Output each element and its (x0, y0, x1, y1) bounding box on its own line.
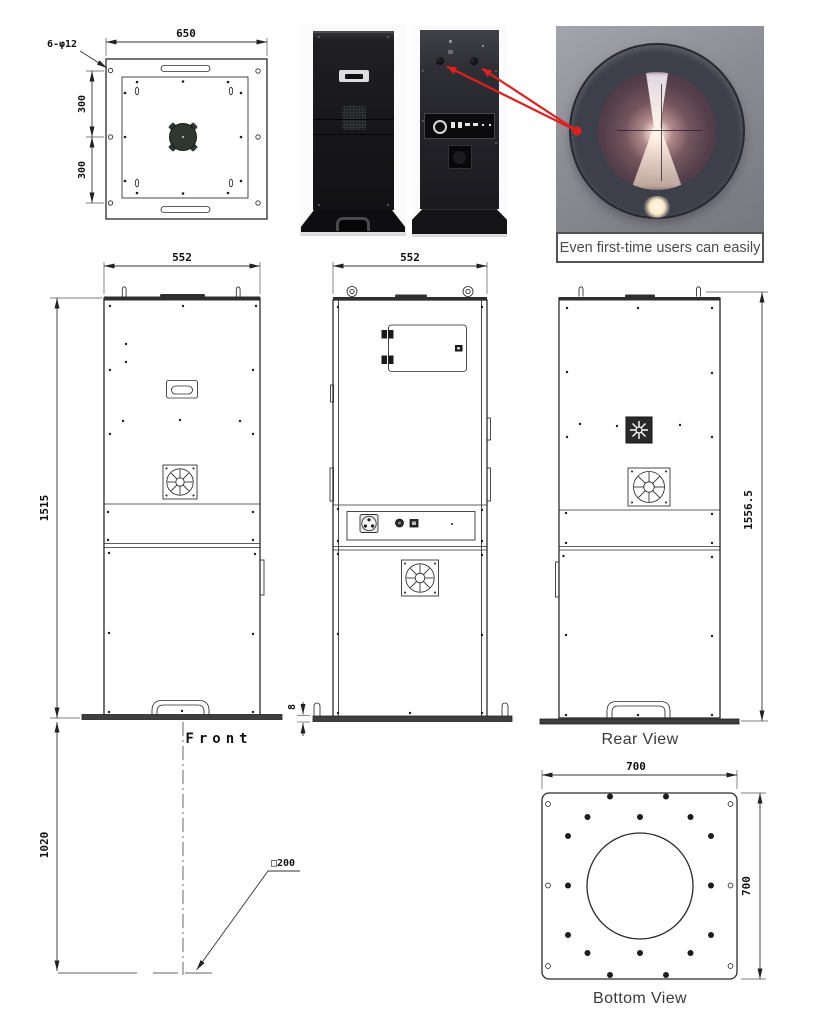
bolt-holes (565, 794, 714, 979)
front-view-label: Front (185, 731, 252, 747)
screw-dots (562, 307, 713, 716)
ceiling-fan (168, 122, 198, 152)
port (473, 123, 478, 126)
screw (495, 142, 497, 144)
light-flare (626, 72, 688, 190)
screw (318, 36, 320, 38)
focus-lens-photo (556, 26, 764, 232)
kiosk-body (313, 31, 394, 210)
large-fan-grille (628, 468, 670, 506)
spec-sheet-page: Even first-time users can easily 650 6-φ… (0, 0, 834, 1024)
lens-glass (598, 72, 716, 190)
access-door (382, 325, 467, 372)
key-slots (135, 87, 232, 187)
power-connector (433, 120, 447, 134)
kiosk-base-flange (412, 208, 507, 234)
bottom-view-drawing: 700 700 Bottom View (542, 760, 766, 1007)
top-width-dim: 650 (176, 27, 196, 40)
fan-hub (453, 151, 466, 164)
focus-knob-left (436, 57, 444, 65)
screw-dots (337, 306, 483, 714)
bottom-width-dim: 700 (626, 760, 646, 773)
open-front-drawing: 552 (287, 251, 512, 736)
bottom-glow (642, 196, 672, 218)
base-thickness-dim: 8 (287, 704, 298, 710)
screw (495, 70, 497, 72)
switch (458, 122, 462, 128)
kiosk-rear-body (420, 30, 499, 209)
base-handle-cutout (336, 217, 370, 231)
led (489, 124, 491, 126)
rear-elevation-drawing: 1556.5 Rear View (540, 287, 768, 748)
pilot-holes (546, 802, 733, 969)
screw (422, 70, 424, 72)
eyebolt-rings (347, 287, 473, 297)
panel-seam (313, 119, 394, 120)
led (482, 124, 484, 126)
open-width-dim: 552 (400, 251, 420, 264)
top-upper-dim: 300 (77, 95, 88, 113)
handle-plate (339, 70, 369, 82)
switch (451, 122, 455, 128)
screw (422, 120, 424, 122)
handle-slot (345, 74, 363, 79)
screw (387, 204, 389, 206)
mounting-holes (108, 68, 260, 205)
bottom-view-label: Bottom View (593, 990, 687, 1007)
small-fan-grille (626, 417, 652, 443)
screw-dots (124, 80, 243, 195)
front-width-dim: 552 (172, 251, 192, 264)
connector-panel-drawing (347, 512, 475, 541)
connector-panel (424, 113, 495, 139)
top-view-drawing: 650 6-φ12 300 300 (47, 27, 267, 219)
crosshair-horizontal (617, 130, 702, 131)
front-height-dim: 1515 (38, 495, 51, 522)
square-note: □200 (271, 858, 295, 869)
bottom-side-dim: 700 (740, 876, 753, 896)
holes-note: 6-φ12 (47, 39, 77, 50)
screw (387, 36, 389, 38)
rear-view-label: Rear View (601, 731, 678, 748)
vent-mark (482, 45, 484, 47)
front-kiosk-photo (300, 24, 406, 236)
floor-dimension-diagram: 1020 □200 (38, 722, 300, 975)
top-lower-dim: 300 (77, 161, 88, 179)
rear-fan (448, 145, 472, 169)
vent-mark (448, 50, 453, 54)
lens-caption-text: Even first-time users can easily (560, 240, 761, 256)
fan-grille (342, 106, 366, 130)
lens-caption: Even first-time users can easily (556, 232, 764, 263)
crosshair-vertical (661, 84, 662, 181)
rear-height-dim: 1556.5 (742, 490, 755, 530)
port (465, 123, 470, 126)
floor-height-dim: 1020 (38, 832, 51, 859)
open-fan-grille (402, 560, 439, 596)
panel-seam (313, 134, 394, 135)
front-fan-grille (163, 465, 197, 499)
screw-dots (107, 305, 257, 713)
vent-mark (449, 40, 452, 43)
screw (318, 204, 320, 206)
rear-kiosk-photo (412, 25, 507, 237)
focus-knob-right (470, 57, 478, 65)
front-elevation-drawing: 552 1515 (38, 251, 282, 747)
